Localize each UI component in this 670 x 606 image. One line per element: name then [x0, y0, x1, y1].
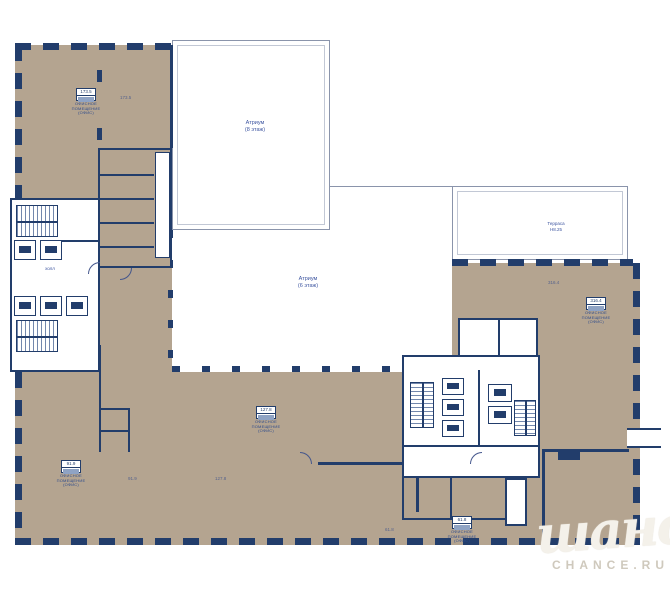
floor-plan-image: холл Атриум (8 этаж) Атриум (6 этаж) Тер…	[0, 0, 670, 606]
area-number: 316.4	[548, 280, 559, 285]
room-stamp-value: 316.4	[587, 298, 605, 305]
office-label-line3: (ОФИС)	[444, 539, 480, 544]
wall-segment	[100, 198, 154, 200]
terrace-roof-line	[330, 186, 454, 187]
stair-icon	[514, 400, 536, 436]
hall-label: холл	[38, 266, 62, 272]
atrium-center-label: Атриум (6 этаж)	[278, 276, 338, 290]
room-stamp: 61.8 ОФИСНОЕ ПОМЕЩЕНИЕ (ОФИС)	[444, 516, 480, 544]
atrium-center-line2: (6 этаж)	[278, 283, 338, 290]
atrium-upper-inner-line	[177, 45, 325, 225]
terrace-line2: Н8.25	[521, 227, 591, 233]
office-label-line3: (ОФИС)	[68, 111, 104, 116]
room-stamp-value: 61.8	[453, 517, 471, 524]
watermark-script: шанс	[534, 495, 670, 566]
atrium-center-line1: Атриум	[278, 276, 338, 283]
elevator-icon	[40, 296, 62, 316]
wall-right-stub	[558, 452, 580, 460]
wall-core-rooms-v1	[402, 478, 404, 520]
elevator-icon	[442, 420, 464, 437]
room-stamp: 316.4 ОФИСНОЕ ПОМЕЩЕНИЕ (ОФИС)	[578, 297, 614, 325]
office-room-label: ОФИСНОЕ ПОМЕЩЕНИЕ (ОФИС)	[68, 102, 104, 116]
wall-column-a	[97, 70, 102, 82]
elevator-icon	[66, 296, 88, 316]
elevator-icon	[442, 399, 464, 416]
room-stamp-box: 316.4	[586, 297, 606, 310]
wall-bottomleft-v2	[128, 408, 130, 452]
wall-core-div	[478, 370, 480, 445]
room-stamp-value: 173.5	[77, 89, 95, 96]
atrium-center-void	[172, 230, 452, 366]
room-stamp-box: 91.9	[61, 460, 81, 473]
office-room-label: ОФИСНОЕ ПОМЕЩЕНИЕ (ОФИС)	[248, 420, 284, 434]
colonnade-atrium-south	[172, 366, 402, 372]
room-stamp-value: 127.8	[257, 407, 275, 414]
area-number: 91.9	[128, 476, 137, 481]
area-number: 61.8	[385, 527, 394, 532]
stair-icon	[16, 205, 58, 237]
terrace-label: Терраса Н8.25	[521, 221, 591, 232]
wall-right-room-h	[543, 449, 629, 452]
room-stamp: 127.8 ОФИСНОЕ ПОМЕЩЕНИЕ (ОФИС)	[248, 406, 284, 434]
wall-segment	[100, 222, 154, 224]
shaft-b	[505, 478, 527, 526]
office-room-label: ОФИСНОЕ ПОМЕЩЕНИЕ (ОФИС)	[578, 311, 614, 325]
wall-bottomleft-h2	[99, 430, 130, 432]
elevator-icon	[488, 406, 512, 424]
wall-segment	[100, 174, 154, 176]
right-notch	[627, 428, 661, 448]
atrium-upper-line1: Атриум	[225, 120, 285, 127]
elevator-icon	[14, 240, 36, 260]
colonnade-right-block	[452, 259, 633, 266]
atrium-upper-void	[172, 40, 330, 230]
wall-atrium-west-upper	[170, 45, 173, 148]
room-stamp-value: 91.9	[62, 461, 80, 468]
window-wall-left-lower	[15, 372, 22, 540]
room-stamp-box: 61.8	[452, 516, 472, 529]
wall-leftcore-div	[62, 240, 100, 242]
watermark-caption: CHANCE.RU	[552, 558, 669, 572]
wall-core-h	[402, 445, 540, 447]
wall-segment	[100, 246, 154, 248]
office-label-line3: (ОФИС)	[53, 483, 89, 488]
office-label-line3: (ОФИС)	[578, 320, 614, 325]
window-wall-left-upper	[15, 45, 22, 198]
elevator-icon	[40, 240, 62, 260]
atrium-upper-label: Атриум (8 этаж)	[225, 120, 285, 134]
area-number: 173.5	[120, 95, 131, 100]
office-room-label: ОФИСНОЕ ПОМЕЩЕНИЕ (ОФИС)	[53, 474, 89, 488]
stair-icon	[16, 320, 58, 352]
wall-bottomleft-h1	[99, 408, 130, 410]
office-label-line3: (ОФИС)	[248, 429, 284, 434]
core-top-rooms	[458, 318, 538, 358]
room-stamp-box: 173.5	[76, 88, 96, 101]
elevator-icon	[14, 296, 36, 316]
elevator-icon	[442, 378, 464, 395]
room-stamp: 173.5 ОФИСНОЕ ПОМЕЩЕНИЕ (ОФИС)	[68, 88, 104, 116]
shaft-a	[155, 152, 170, 258]
room-stamp: 91.9 ОФИСНОЕ ПОМЕЩЕНИЕ (ОФИС)	[53, 460, 89, 488]
elevator-icon	[488, 384, 512, 402]
wall-column-b	[97, 128, 102, 140]
atrium-upper-line2: (8 этаж)	[225, 127, 285, 134]
stair-icon	[410, 382, 434, 428]
wall-core-rooms-v2	[450, 478, 452, 518]
office-room-label: ОФИСНОЕ ПОМЕЩЕНИЕ (ОФИС)	[444, 530, 480, 544]
wall-segment	[498, 320, 500, 355]
room-stamp-box: 127.8	[256, 406, 276, 419]
area-number: 127.8	[215, 476, 226, 481]
window-wall-top	[15, 43, 172, 50]
